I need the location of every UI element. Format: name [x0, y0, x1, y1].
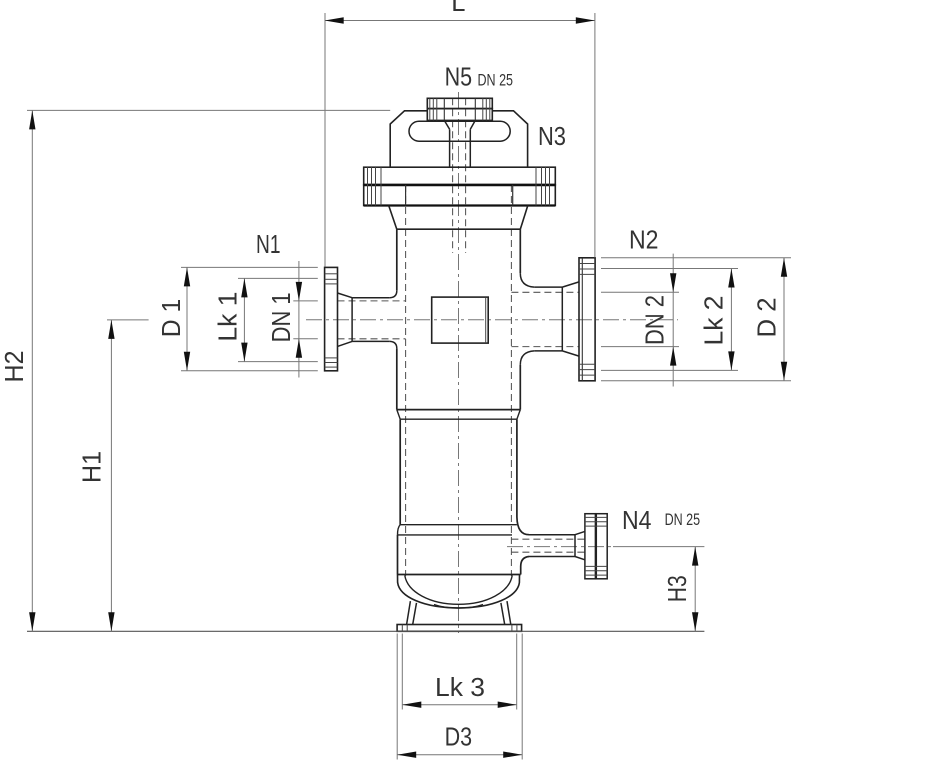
svg-text:DN 1: DN 1: [268, 292, 296, 342]
svg-text:L: L: [451, 0, 465, 17]
svg-text:Lk 2: Lk 2: [701, 296, 729, 346]
svg-text:H3: H3: [664, 575, 692, 602]
svg-text:D 1: D 1: [158, 299, 186, 338]
svg-text:H1: H1: [79, 451, 107, 483]
svg-text:DN 25: DN 25: [478, 70, 514, 89]
svg-text:DN 2: DN 2: [642, 295, 670, 345]
svg-text:N3: N3: [538, 123, 566, 151]
svg-text:H2: H2: [1, 351, 29, 383]
svg-text:N1: N1: [256, 231, 281, 259]
svg-text:N4: N4: [622, 507, 652, 535]
svg-text:D 2: D 2: [754, 298, 782, 338]
svg-text:Lk 3: Lk 3: [435, 674, 485, 702]
svg-text:N5: N5: [445, 63, 473, 91]
svg-text:Lk 1: Lk 1: [215, 292, 243, 342]
svg-text:N2: N2: [629, 227, 659, 255]
svg-text:DN 25: DN 25: [665, 510, 701, 529]
svg-text:D3: D3: [445, 724, 473, 752]
